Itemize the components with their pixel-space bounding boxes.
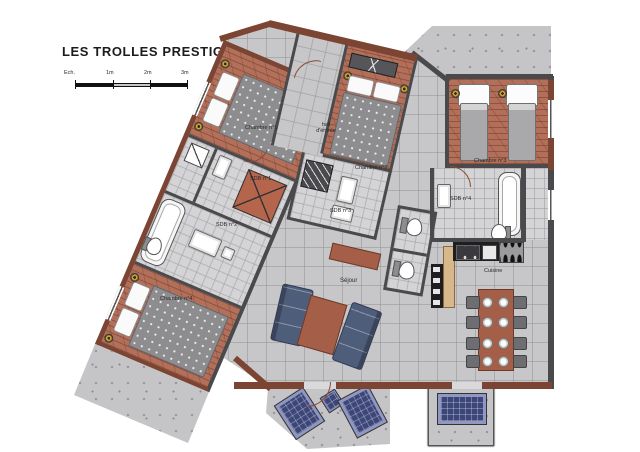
scale-tick — [75, 80, 76, 89]
lounge-bench — [438, 394, 486, 424]
plate — [482, 317, 493, 328]
dining-chair — [513, 355, 527, 368]
bathtub-inner — [502, 176, 517, 232]
plate — [498, 338, 509, 349]
terrace-door-opening — [452, 382, 482, 389]
kitchen-appliance-doors — [433, 267, 440, 305]
wall — [430, 168, 434, 240]
wall — [521, 168, 526, 238]
dining-chair — [513, 316, 527, 329]
window — [548, 190, 554, 220]
room-label-sdb-4: SDB n°4 — [450, 196, 471, 202]
kitchen-sink — [482, 245, 497, 260]
window — [548, 100, 554, 138]
room-label-chambre-2: Chambre n°2 — [355, 165, 387, 171]
scale-tick — [113, 80, 114, 89]
room-label-cuisine: Cuisine — [484, 268, 502, 274]
single-bed — [508, 103, 536, 161]
scale-mark-2m: 2m — [144, 70, 152, 76]
wall-lamp-icon — [451, 89, 460, 98]
scale-bar: Ech. 1m 2m 3m — [64, 70, 196, 92]
room-label-sdb-3: SDB n°3 — [330, 208, 351, 214]
wall-lamp-icon — [498, 89, 507, 98]
dining-chair — [513, 296, 527, 309]
room-label-chambre-4: Chambre n°4 — [160, 296, 192, 302]
plate — [482, 297, 493, 308]
room-label-sdb-1: SDB n°1 — [250, 176, 271, 182]
plate — [498, 317, 509, 328]
wall — [445, 164, 553, 168]
plate — [498, 356, 509, 367]
sink — [437, 184, 451, 208]
room-label-sdb-2: SDB n°2 — [216, 222, 237, 228]
wall — [446, 74, 553, 79]
dining-chair — [466, 355, 480, 368]
plate — [482, 338, 493, 349]
floor-plan: LES TROLLES PRESTIGE N°3 Ech. 1m 2m 3m — [0, 0, 640, 452]
scale-tick — [187, 80, 188, 89]
scale-segment — [75, 83, 113, 87]
dining-chair — [466, 296, 480, 309]
single-bed — [460, 103, 488, 161]
scale-tick — [150, 80, 151, 89]
plate — [498, 297, 509, 308]
room-label-chambre-3: Chambre n°3 — [474, 158, 506, 164]
scale-label: Ech. — [64, 70, 75, 76]
scale-segment — [113, 83, 152, 87]
wall — [393, 248, 427, 257]
exterior-wall — [234, 382, 552, 389]
scale-mark-1m: 1m — [106, 70, 114, 76]
scale-mark-3m: 3m — [181, 70, 189, 76]
cooktop — [456, 245, 480, 260]
hob-burners — [499, 242, 524, 263]
dining-chair — [466, 337, 480, 350]
room-label-hall: hall d'entrée — [312, 122, 340, 134]
plate — [482, 356, 493, 367]
wall — [445, 79, 449, 168]
dining-chair — [513, 337, 527, 350]
wall — [430, 238, 526, 242]
dining-chair — [466, 316, 480, 329]
room-label-chambre-1: Chambre n°1 — [245, 125, 277, 131]
room-label-sejour: Séjour — [340, 278, 357, 285]
scale-segment — [150, 83, 188, 87]
